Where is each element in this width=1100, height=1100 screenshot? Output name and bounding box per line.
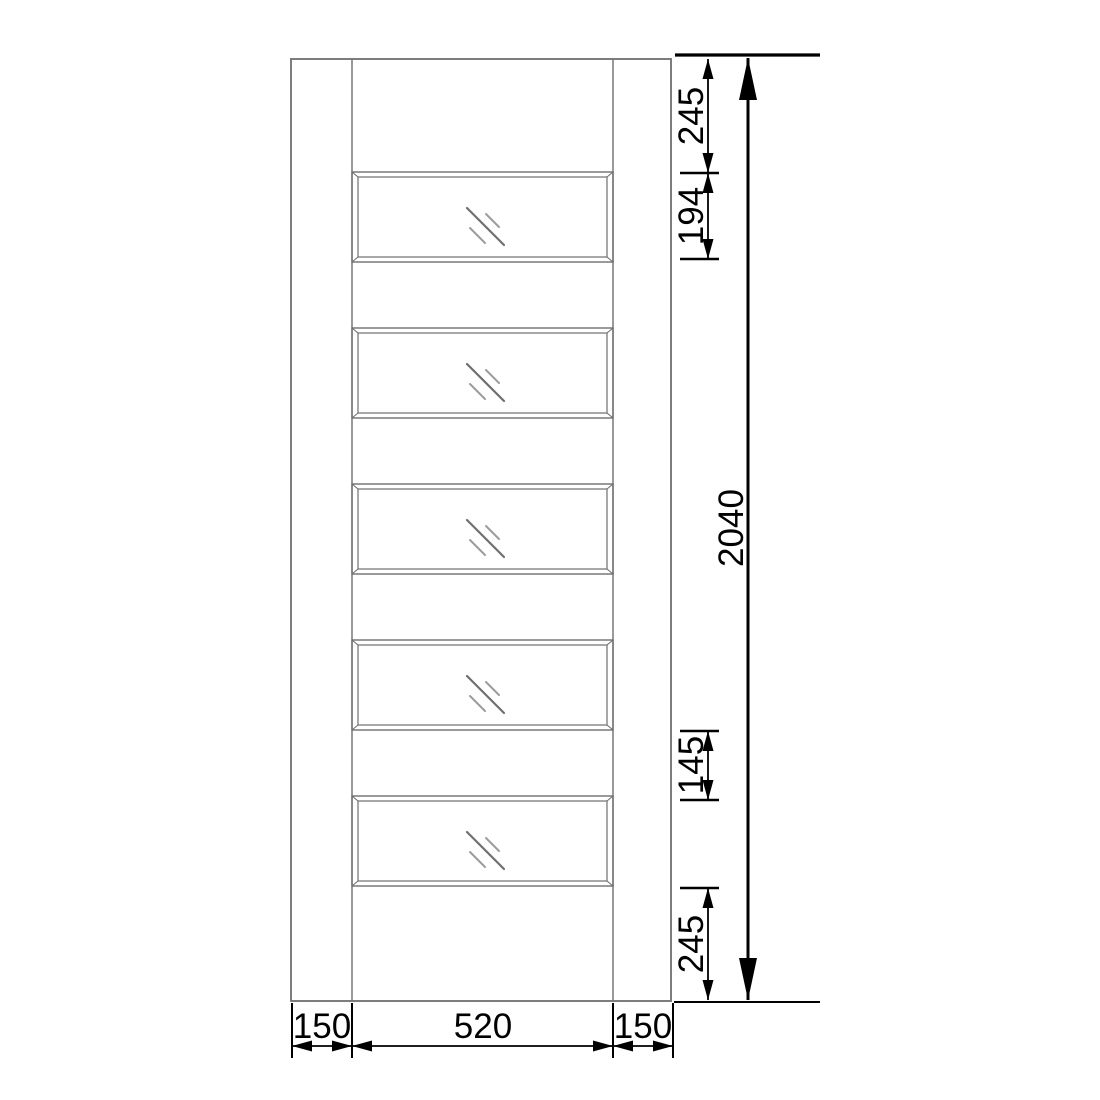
dimension-panel-height: 194 bbox=[672, 173, 714, 259]
arrow-down-icon bbox=[739, 958, 757, 1000]
arrow-down-icon bbox=[703, 153, 714, 173]
horizontal-dimensions: 150 520 150 bbox=[292, 1003, 673, 1058]
arrow-left-icon bbox=[352, 1041, 372, 1052]
vertical-dimensions: 245 194 145 245 2040 bbox=[672, 55, 820, 1002]
door-outline bbox=[291, 59, 671, 1001]
dim-label-panel-gap: 145 bbox=[672, 736, 711, 794]
dim-label-top-rail: 245 bbox=[672, 87, 711, 145]
arrow-up-icon bbox=[703, 59, 714, 79]
arrow-up-icon bbox=[739, 58, 757, 100]
dimension-top-rail: 245 bbox=[672, 59, 714, 173]
dim-label-right-stile: 150 bbox=[614, 1007, 672, 1046]
drawing-canvas: 245 194 145 245 2040 bbox=[0, 0, 1100, 1100]
door-technical-drawing: 245 194 145 245 2040 bbox=[0, 0, 1100, 1100]
arrow-right-icon bbox=[593, 1041, 613, 1052]
dimension-bottom-rail: 245 bbox=[672, 888, 714, 1000]
dim-label-bottom-rail: 245 bbox=[672, 915, 711, 973]
door-elevation bbox=[291, 59, 671, 1001]
dim-label-total-height: 2040 bbox=[712, 489, 751, 567]
dimension-total-height: 2040 bbox=[712, 58, 757, 1000]
dim-label-panel-height: 194 bbox=[672, 187, 711, 245]
dim-label-panel-width: 520 bbox=[454, 1007, 512, 1046]
arrow-down-icon bbox=[703, 980, 714, 1000]
dim-label-left-stile: 150 bbox=[293, 1007, 351, 1046]
dimension-panel-gap: 145 bbox=[672, 731, 714, 800]
arrow-up-icon bbox=[703, 888, 714, 908]
